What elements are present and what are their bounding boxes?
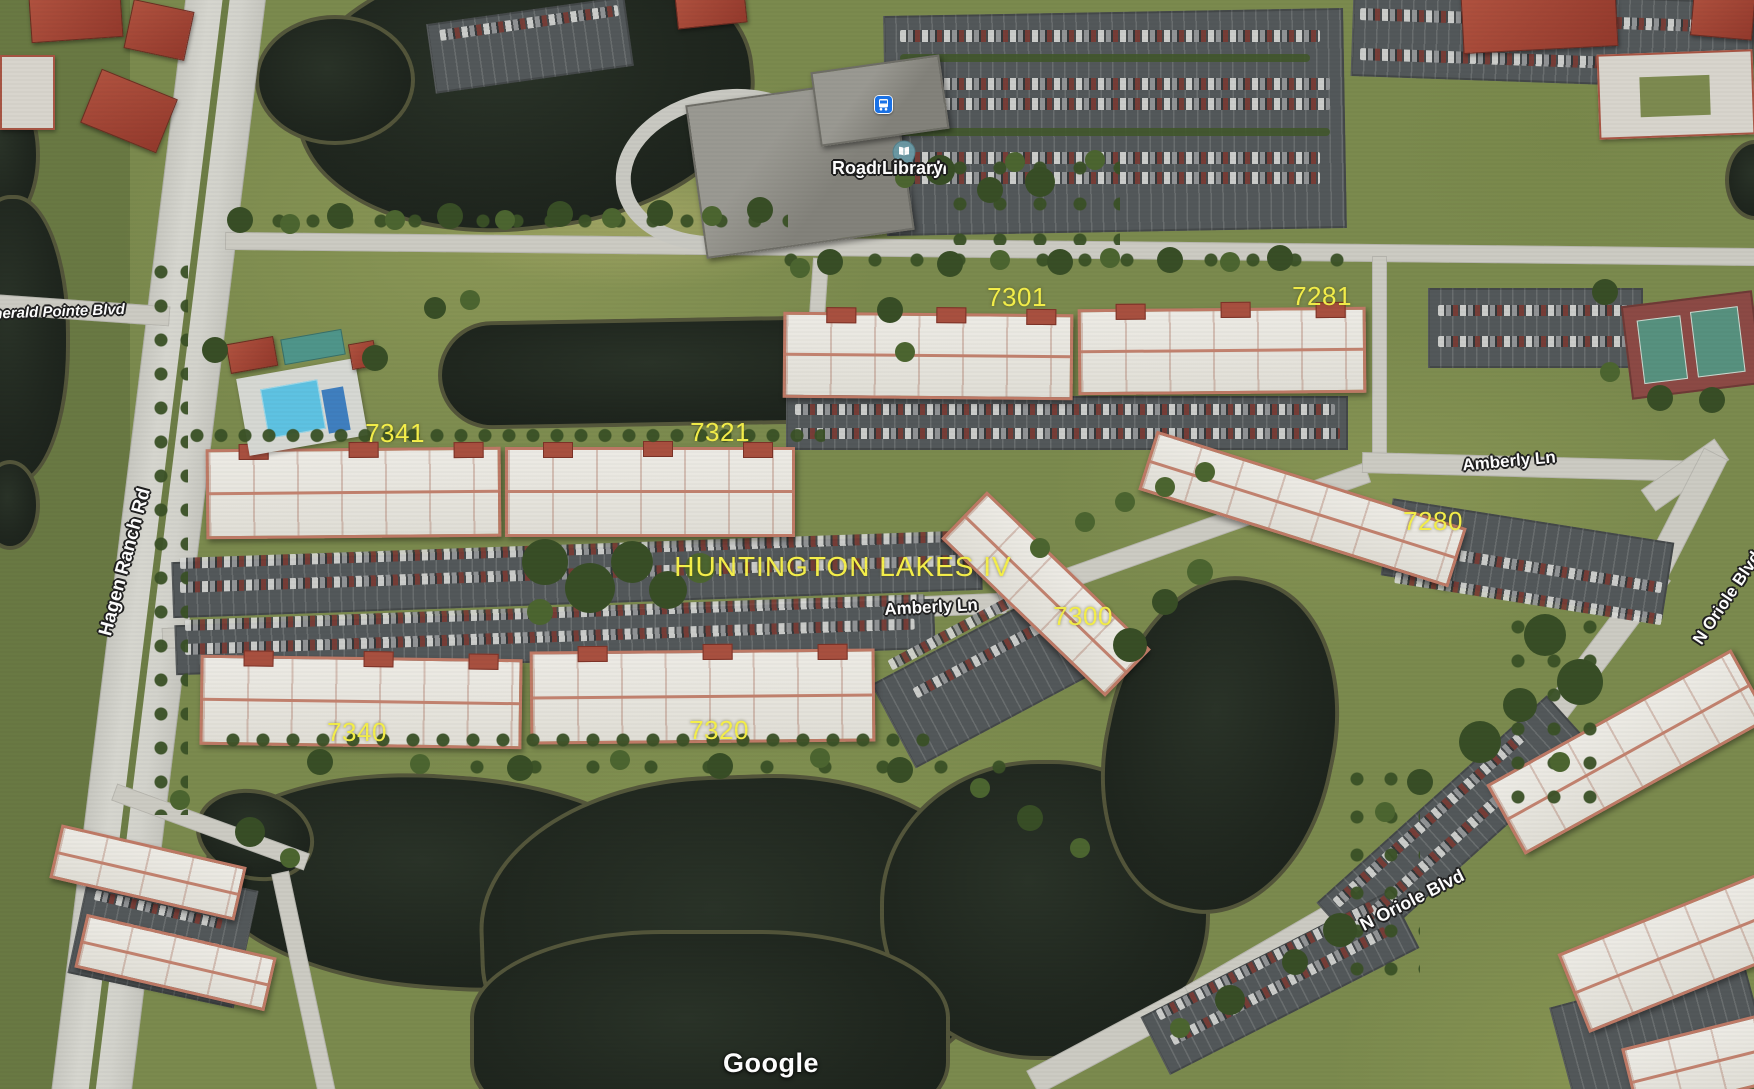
lake (470, 930, 950, 1089)
roof-cap (703, 644, 733, 660)
tree-grove (1500, 610, 1610, 810)
library-label-line2: Road Library (832, 158, 943, 178)
aerial-map-canvas[interactable]: Hagen Ranch Road Library 7341 7321 7301 … (0, 0, 1754, 1089)
building (123, 0, 194, 61)
roof-cap (578, 646, 608, 662)
building-number-7341: 7341 (365, 420, 425, 446)
roof-cap (1221, 302, 1251, 318)
car-row (1438, 305, 1628, 316)
car-row (900, 78, 1330, 90)
tennis-court-surface (1637, 315, 1688, 384)
building-number-7300: 7300 (1053, 603, 1113, 629)
parking-lot (1428, 288, 1643, 368)
roof-cap (936, 307, 966, 323)
building-courtyard (1597, 49, 1754, 139)
building-number-7280: 7280 (1403, 508, 1463, 534)
road-label-amberly-center: Amberly Ln (884, 596, 978, 618)
tree-grove (1340, 760, 1420, 990)
condo-building-7341 (206, 447, 502, 540)
building-number-7281: 7281 (1292, 283, 1352, 309)
courtyard-lawn (1639, 75, 1710, 117)
condo-building-7321 (505, 447, 795, 537)
parking-hedge (900, 128, 1330, 136)
building (1690, 0, 1754, 41)
bus-icon (875, 96, 892, 113)
roof-cap (1116, 304, 1146, 320)
condo-building-7301 (783, 312, 1074, 401)
clubhouse (348, 340, 378, 370)
car-row (900, 30, 1320, 42)
building-number-7301: 7301 (987, 284, 1047, 310)
building-number-7340: 7340 (327, 719, 387, 745)
building-number-7320: 7320 (689, 717, 749, 743)
tennis-courts (1621, 290, 1754, 399)
community-label: HUNTINGTON LAKES IV (674, 553, 1011, 581)
tennis-court-surface (1690, 306, 1746, 377)
tree-grove (770, 248, 1370, 272)
car-row (795, 428, 1340, 439)
car-row (900, 98, 1330, 110)
roof-cap (468, 653, 498, 669)
tree-grove (940, 150, 1120, 245)
pond (255, 15, 415, 145)
google-watermark: Google (723, 1048, 819, 1079)
condo-building-7281 (1078, 307, 1367, 396)
road-driveway (1372, 256, 1387, 466)
car-row (1438, 336, 1628, 347)
building (1461, 0, 1619, 54)
car-row (795, 404, 1335, 415)
tree-grove (390, 752, 1040, 784)
parking-hedge (900, 54, 1310, 62)
road-label-oriole-east: N Oriole Blvd (1690, 549, 1754, 648)
building (29, 0, 124, 43)
bus-stop-icon[interactable] (874, 95, 893, 114)
tree-grove (218, 728, 938, 754)
roof-cap (243, 650, 273, 666)
building (0, 55, 55, 130)
tree-grove (228, 208, 788, 236)
tree-grove (148, 255, 188, 815)
roof-cap (363, 651, 393, 667)
roof-cap (818, 644, 848, 660)
building-number-7321: 7321 (690, 419, 750, 445)
roof-cap (826, 307, 856, 323)
tree (0, 0, 26, 26)
